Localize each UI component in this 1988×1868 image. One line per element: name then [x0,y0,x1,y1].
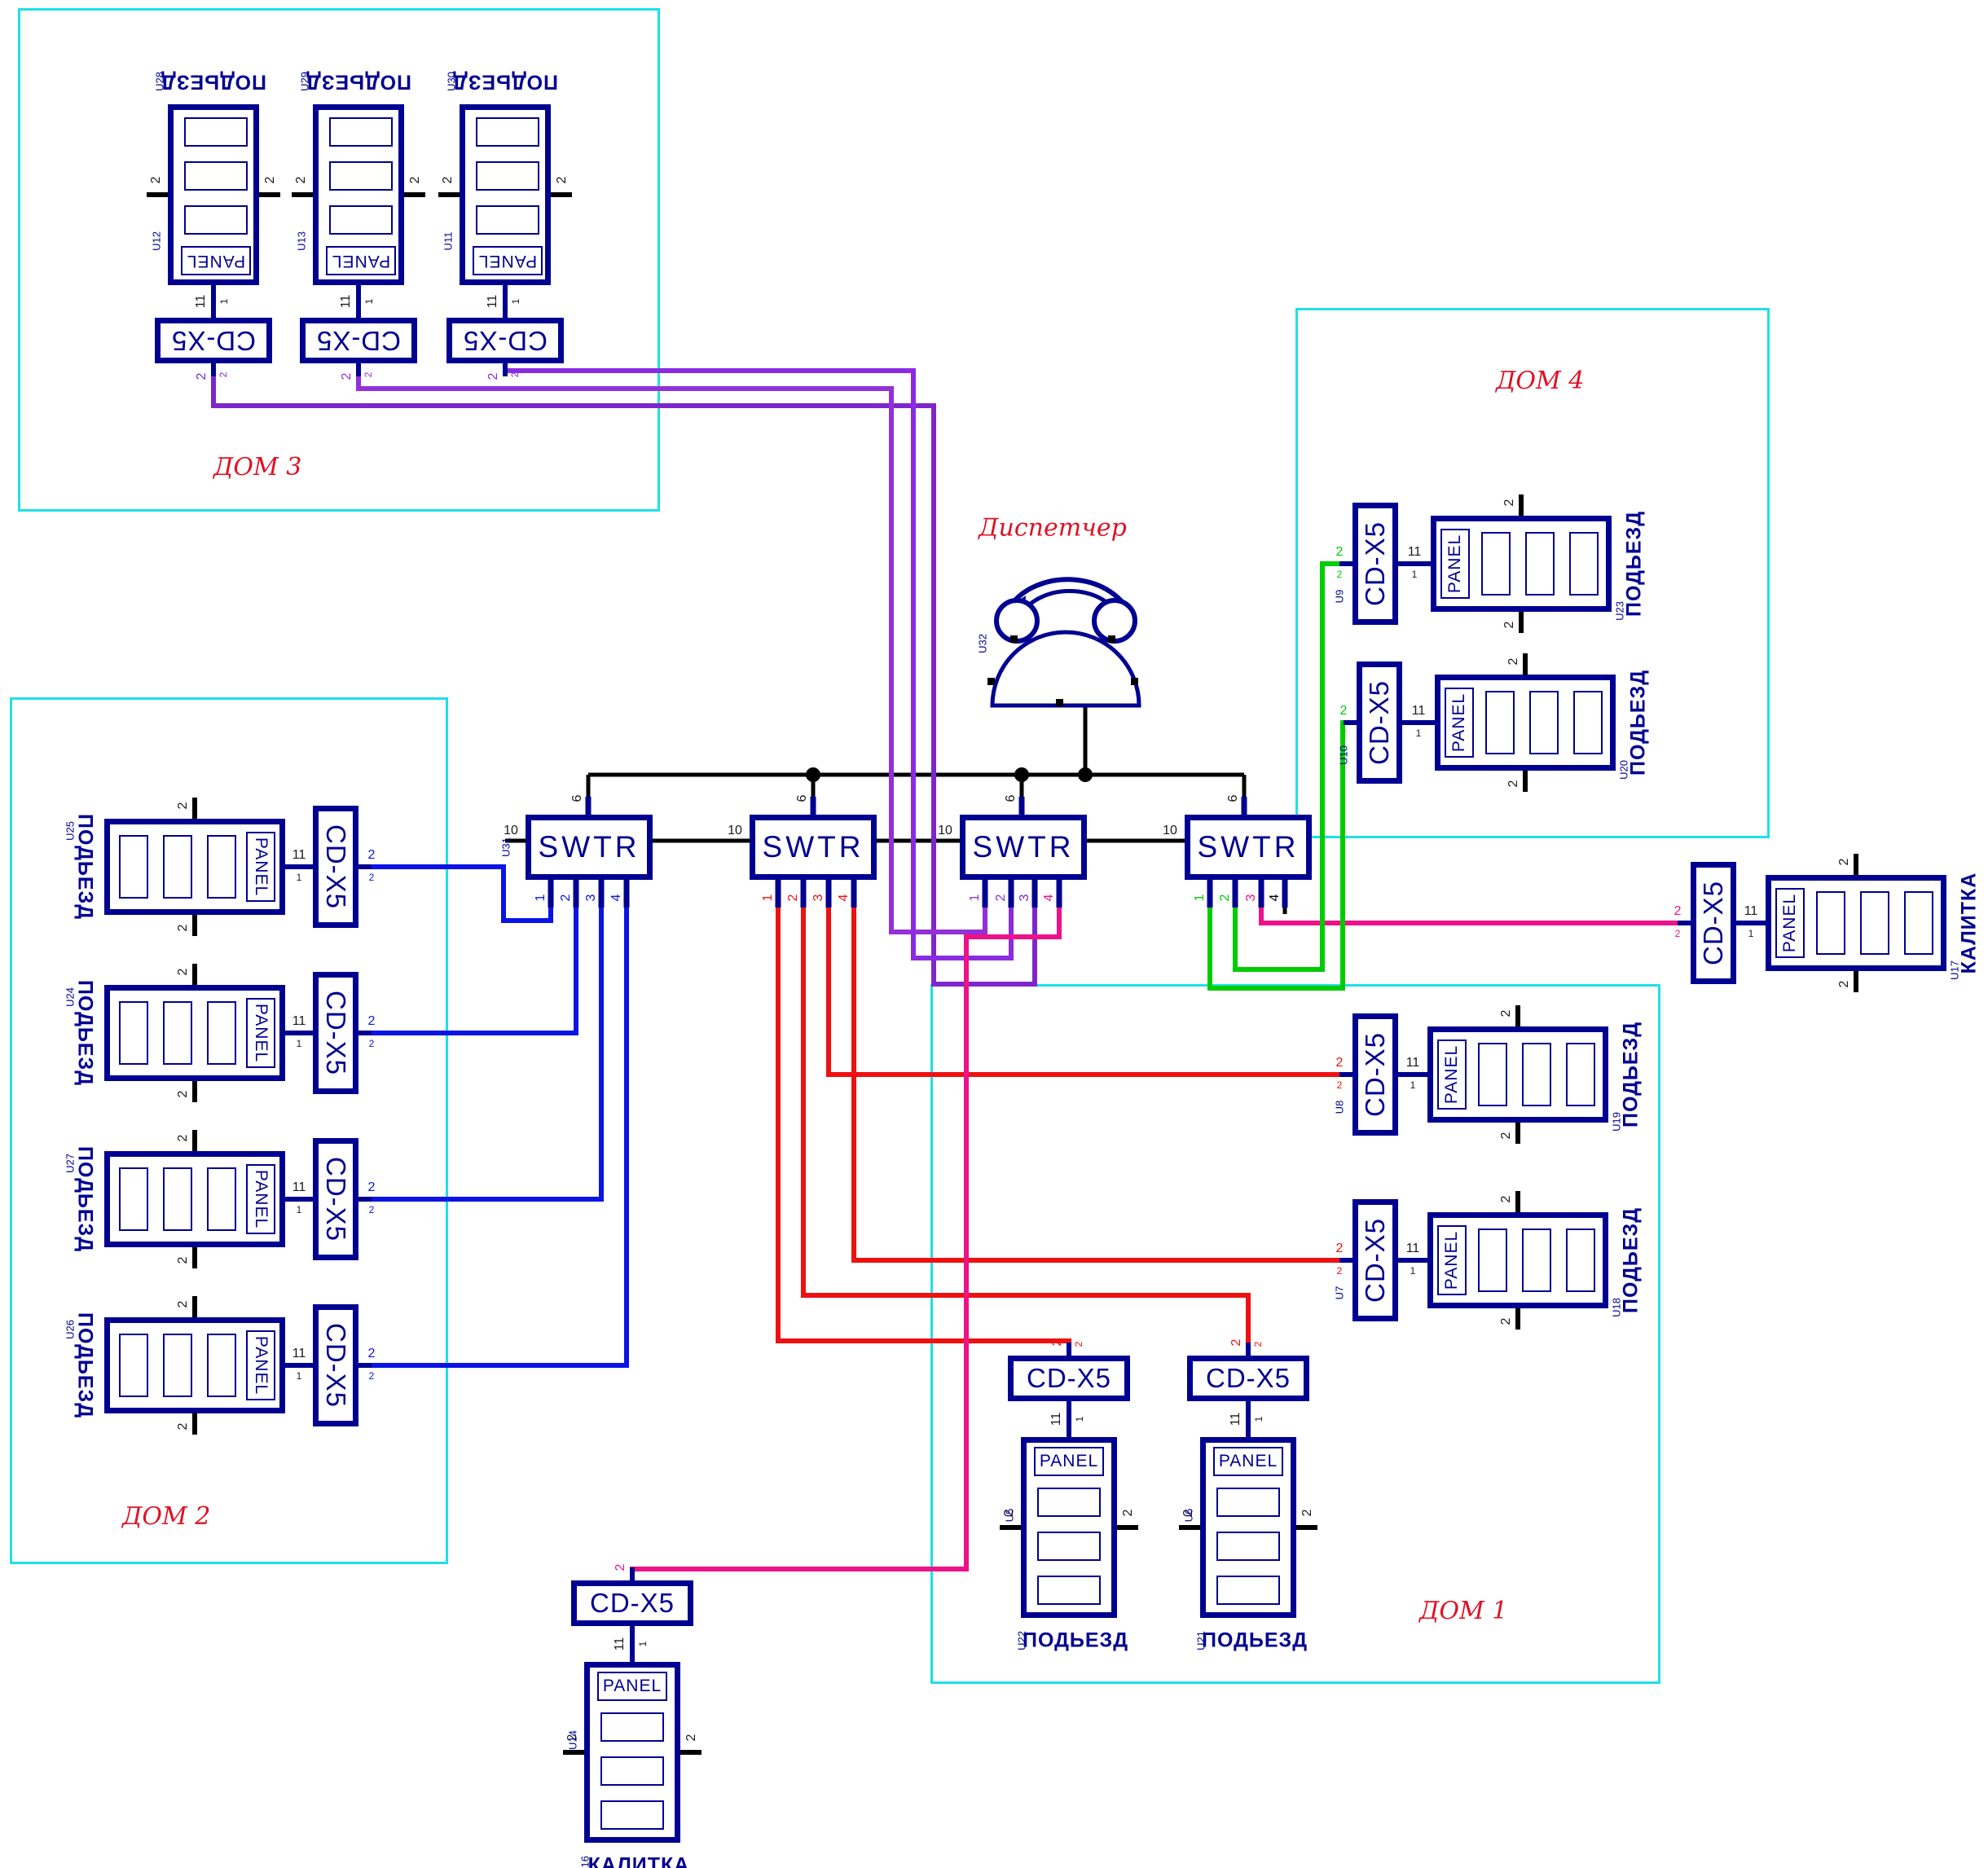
entrance-ref: U16 [579,1856,592,1868]
cdx5-label: CD-X5 [1698,881,1729,965]
panel-label: PANEL [1449,693,1469,752]
pin-2-label: 2 [176,802,191,810]
pin-net-label: 2 [369,1204,375,1215]
pin-2-label: 2 [294,177,309,184]
entrance-ref: U20 [1618,760,1630,780]
panel-slot [600,1712,664,1742]
panel-slot [184,117,248,147]
panel-label: PANEL [1442,1045,1462,1104]
pin-2-label: 2 [1499,1132,1514,1140]
entrance-ref: U30 [446,72,458,91]
pin-out-label: 2 [368,1347,376,1361]
pin-out-label: 2 [486,373,501,380]
pin-net-label: 2 [636,1567,648,1572]
swtr-pin-label: 4 [837,894,851,902]
cdx5-label: CD-X5 [1360,1218,1391,1303]
entrance-label: ПОДЬЕЗД [73,814,97,920]
pin-1-label: 1 [637,1642,649,1647]
swtr-pin-6-label: 6 [1004,795,1018,802]
panel-slot [119,1334,148,1397]
dispatcher-earcup [1094,600,1135,641]
panel-slot [1569,532,1599,596]
swtr-pin-6-label: 6 [570,795,585,802]
pin-2-label: 2 [263,177,278,184]
pin-2-label: 2 [441,177,455,184]
entrance-label: ПОДЬЕЗД [1202,1629,1308,1653]
cdx5-label: CD-X5 [463,325,548,356]
entrance-label: ПОДЬЕЗД [306,70,411,94]
entrance-label: ПОДЬЕЗД [1620,1207,1643,1313]
entrance-label: ПОДЬЕЗД [161,70,266,94]
cdx5-label: CD-X5 [1364,680,1395,765]
cdx5-label: CD-X5 [1360,1032,1391,1117]
symbol-pin-mark [1108,635,1115,643]
pin-1-label: 1 [297,1370,302,1382]
swtr-pin-label: 3 [811,894,826,902]
pin-2-label: 2 [149,177,164,184]
panel-slot [184,161,248,191]
junction-dot [1078,767,1093,782]
dispatcher-label: Диспетчер [979,514,1127,543]
junction-dot [806,767,820,782]
panel-slot [1904,891,1933,955]
cdx5-label: CD-X5 [320,991,351,1075]
entrance-label: ПОДЬЕЗД [1023,1629,1128,1653]
swtr-pin-6-label: 6 [1226,795,1241,802]
pin-1-label: 1 [1412,569,1418,580]
panel-label: PANEL [1442,1231,1462,1290]
pin-2-label: 2 [1837,981,1852,988]
wire-r-dom1-1[interactable] [778,878,1069,1356]
pin-2-label: 2 [1499,1196,1514,1203]
entrance-label: ПОДЬЕЗД [1627,670,1651,776]
junction-dot [1014,767,1029,782]
panel-slot [207,835,236,899]
panel-slot [476,117,539,147]
swtr-label: SWTR [973,830,1075,864]
panel-ref: U5 [1004,1509,1016,1523]
panel-label: PANEL [1040,1452,1098,1471]
panel-slot [1566,1228,1595,1292]
panel-slot [163,1167,192,1231]
panel-label: PANEL [251,1004,270,1062]
pin-net-label: 2 [1341,727,1347,739]
cdx5-label: CD-X5 [590,1588,675,1619]
panel-slot [1573,691,1603,754]
pin-2-label: 2 [1300,1510,1315,1517]
pin-2-label: 2 [1837,859,1852,866]
pin-2-label: 2 [1502,499,1517,507]
pin-2-label: 2 [176,1301,191,1308]
dispatcher-icon[interactable] [987,579,1139,706]
panel-slot [1816,891,1845,955]
panel-slot [1525,532,1555,596]
cdx5-ref: U8 [1334,1101,1346,1114]
pin-out-label: 2 [368,1180,376,1195]
pin-1-label: 1 [297,1038,302,1049]
symbol-pin-mark [987,678,995,685]
panel-slot [600,1800,664,1830]
panel-label: PANEL [251,837,270,896]
swtr-pin-label: 1 [534,894,548,902]
swtr-pin-label: 4 [1042,894,1057,902]
wire-m-gate-right[interactable] [1261,878,1691,923]
symbol-pin-mark [1131,678,1138,685]
pin-11-label: 11 [292,1014,306,1029]
pin-net-label: 2 [1337,1265,1343,1277]
pin-2-label: 2 [176,1423,191,1431]
swtr-pin-label: 3 [1018,894,1032,902]
pin-net-label: 2 [1337,1079,1343,1091]
entrance-label: ПОДЬЕЗД [1623,511,1647,617]
pin-2-label: 2 [408,177,423,184]
wire-b-dom2-2[interactable] [358,878,576,1033]
entrance-label: ПОДЬЕЗД [73,1146,97,1252]
panel-slot [1037,1532,1101,1561]
swtr-pin-label: 1 [1193,894,1207,902]
swtr-pin-label: 1 [968,894,983,902]
panel-slot [207,1001,236,1065]
panel-slot [1478,1228,1507,1292]
pin-1-label: 1 [510,299,521,305]
cdx5-label: CD-X5 [320,824,351,909]
wire-layer [0,0,1988,1868]
panel-label: PANEL [187,251,245,270]
pin-2-label: 2 [176,925,191,932]
cdx5-label: CD-X5 [1206,1363,1291,1394]
swtr-label: SWTR [1198,830,1300,864]
panel-slot [207,1167,236,1231]
panel-label: PANEL [1780,894,1800,952]
entrance-ref: U24 [64,987,77,1007]
cdx5-label: CD-X5 [1027,1363,1111,1394]
pin-1-label: 1 [1416,727,1422,739]
entrance-label: КАЛИТКА [588,1854,690,1868]
panel-slot [119,1167,148,1231]
cdx5-ref: U7 [1334,1286,1346,1300]
wire-p-dom3-2[interactable] [358,363,985,932]
panel-slot [1216,1532,1280,1561]
panel-label: PANEL [603,1677,662,1696]
entrance-ref: U27 [64,1154,77,1173]
swtr-pin-10-label: 10 [1163,824,1177,838]
cdx5-label: CD-X5 [171,325,256,356]
pin-11-label: 11 [194,295,209,309]
panel-ref: U6 [1183,1509,1195,1523]
pin-1-label: 1 [1074,1417,1085,1422]
swtr-pin-label: 2 [559,894,574,902]
pin-net-label: 2 [218,372,229,378]
pin-1-label: 1 [297,872,302,883]
panel-slot [600,1756,664,1786]
cdx5-ref: U10 [1338,745,1350,765]
entrance-ref: U28 [154,72,166,91]
panel-slot [1566,1043,1595,1106]
panel-slot [1522,1228,1551,1292]
swtr-ref: U31 [500,837,512,857]
pin-net-label: 2 [369,1370,375,1382]
wire-b-dom2-3[interactable] [358,878,601,1199]
panel-slot [119,835,148,899]
panel-slot [329,161,393,191]
pin-out-label: 2 [1050,1339,1065,1347]
pin-out-label: 2 [195,373,209,380]
pin-1-label: 1 [1748,928,1754,939]
panel-slot [476,161,539,191]
cdx5-label: CD-X5 [1360,521,1391,606]
panel-slot [163,835,192,899]
entrance-ref: U29 [299,72,311,91]
pin-net-label: 2 [1337,569,1343,580]
wire-r-dom1-4[interactable] [854,878,1352,1260]
pin-2-label: 2 [1506,658,1521,666]
pin-11-label: 11 [1408,545,1422,560]
pin-out-label: 2 [340,373,354,380]
panel-slot [1037,1488,1101,1517]
pin-net-label: 2 [369,872,375,883]
pin-2-label: 2 [176,1091,191,1098]
wire-g-dom4-2[interactable] [1235,564,1352,969]
panel-slot [1485,691,1515,754]
panel-slot [1481,532,1511,596]
pin-out-label: 2 [1229,1339,1244,1347]
panel-label: PANEL [251,1170,270,1228]
cdx5-label: CD-X5 [320,1157,351,1242]
pin-2-label: 2 [1499,1318,1514,1325]
pin-11-label: 11 [613,1637,627,1651]
pin-out-label: 2 [1336,1242,1344,1256]
panel-ref: U12 [151,231,163,251]
entrance-label: ПОДЬЕЗД [1620,1022,1643,1127]
pin-11-label: 11 [1744,904,1758,919]
panel-slot [184,205,248,235]
wire-r-dom1-2[interactable] [803,878,1248,1356]
pin-out-label: 2 [368,1014,376,1029]
swtr-pin-label: 4 [609,894,624,902]
panel-label: PANEL [1445,534,1465,593]
pin-net-label: 2 [1675,928,1681,939]
swtr-pin-label: 3 [1244,894,1259,902]
pin-out-label: 2 [1674,904,1682,919]
pin-out-label: 2 [1340,704,1348,719]
pin-1-label: 1 [1410,1265,1416,1277]
panel-slot [476,205,539,235]
entrance-ref: U22 [1016,1631,1028,1650]
swtr-pin-10-label: 10 [504,824,518,838]
cdx5-label: CD-X5 [320,1323,351,1408]
entrance-ref: U23 [1614,601,1626,621]
entrance-ref: U25 [64,821,77,841]
entrance-label: ПОДЬЕЗД [73,980,97,1086]
panel-ref: U14 [567,1730,579,1750]
panel-label: PANEL [478,251,537,270]
entrance-label: ПОДЬЕЗД [73,1312,97,1418]
pin-11-label: 11 [1406,1056,1420,1070]
swtr-pin-10-label: 10 [938,824,952,838]
symbol-pin-mark [1010,635,1018,643]
wire-r-dom1-3[interactable] [829,878,1352,1075]
pin-11-label: 11 [1229,1413,1243,1426]
panel-label: PANEL [251,1336,270,1395]
wire-b-dom2-1[interactable] [358,867,551,921]
pin-net-label: 2 [509,372,521,378]
entrance-ref: U19 [1611,1112,1623,1132]
cdx5-label: CD-X5 [316,325,401,356]
dispatcher-ref: U32 [977,634,989,653]
panel-label: PANEL [332,251,390,270]
swtr-pin-label: 2 [786,894,801,902]
pin-2-label: 2 [684,1734,699,1742]
pin-11-label: 11 [1406,1242,1420,1256]
pin-1-label: 1 [1253,1417,1264,1422]
entrance-label: КАЛИТКА [1958,872,1981,974]
pin-2-label: 2 [176,1257,191,1264]
pin-1-label: 1 [297,1204,302,1215]
entrance-ref: U26 [64,1320,77,1339]
panel-slot [163,1334,192,1397]
swtr-pin-label: 4 [1268,894,1282,902]
swtr-pin-label: 1 [761,894,776,902]
pin-2-label: 2 [176,1135,191,1142]
pin-11-label: 11 [1412,704,1426,719]
pin-net-label: 2 [369,1038,375,1049]
pin-2-label: 2 [1499,1010,1514,1018]
pin-11-label: 11 [1049,1413,1064,1426]
dispatcher-earcup [996,600,1037,641]
panel-slot [1037,1576,1101,1605]
swtr-label: SWTR [763,830,864,864]
pin-2-label: 2 [1506,780,1521,788]
pin-11-label: 11 [292,1347,306,1361]
panel-slot [119,1001,148,1065]
panel-slot [1216,1488,1280,1517]
cdx5-ref: U9 [1334,590,1346,604]
pin-out-label: 2 [1336,1056,1344,1070]
entrance-ref: U18 [1611,1298,1623,1317]
schematic-canvas: ДОМ 3ДОМ 2ДОМ 4ДОМ 1ДиспетчерU32SWTR610U… [0,0,1988,1868]
swtr-pin-10-label: 10 [728,824,742,838]
panel-slot [1522,1043,1551,1106]
pin-1-label: 1 [1410,1079,1416,1091]
swtr-pin-label: 2 [1218,894,1233,902]
swtr-label: SWTR [539,830,640,864]
pin-out-label: 2 [1336,545,1344,560]
pin-net-label: 2 [1252,1342,1264,1347]
swtr-pin-6-label: 6 [795,795,810,802]
entrance-ref: U17 [1949,960,1961,980]
pin-11-label: 11 [339,295,354,309]
swtr-pin-label: 2 [994,894,1009,902]
pin-2-label: 2 [555,177,570,184]
pin-11-label: 11 [292,848,306,863]
panel-slot [163,1001,192,1065]
swtr-pin-label: 3 [584,894,599,902]
panel-slot [207,1334,236,1397]
symbol-pin-mark [1056,699,1063,706]
panel-ref: U13 [296,231,308,251]
pin-2-label: 2 [176,969,191,976]
pin-2-label: 2 [1502,622,1517,629]
panel-slot [1478,1043,1507,1106]
pin-11-label: 11 [486,295,500,309]
panel-slot [1860,891,1889,955]
panel-slot [1529,691,1559,754]
entrance-label: ПОДЬЕЗД [452,70,558,94]
panel-slot [329,205,393,235]
entrance-ref: U21 [1195,1631,1207,1650]
pin-out-label: 2 [368,848,376,863]
wire-b-dom2-4[interactable] [358,878,627,1365]
panel-ref: U11 [442,232,455,251]
panel-slot [1216,1576,1280,1605]
pin-11-label: 11 [292,1180,306,1195]
panel-label: PANEL [1219,1452,1278,1471]
pin-2-label: 2 [1121,1510,1136,1517]
panel-slot [329,117,393,147]
pin-1-label: 1 [363,299,375,305]
pin-net-label: 2 [363,372,374,378]
pin-out-label: 2 [614,1564,628,1571]
pin-net-label: 2 [1073,1342,1084,1347]
pin-1-label: 1 [218,299,230,305]
